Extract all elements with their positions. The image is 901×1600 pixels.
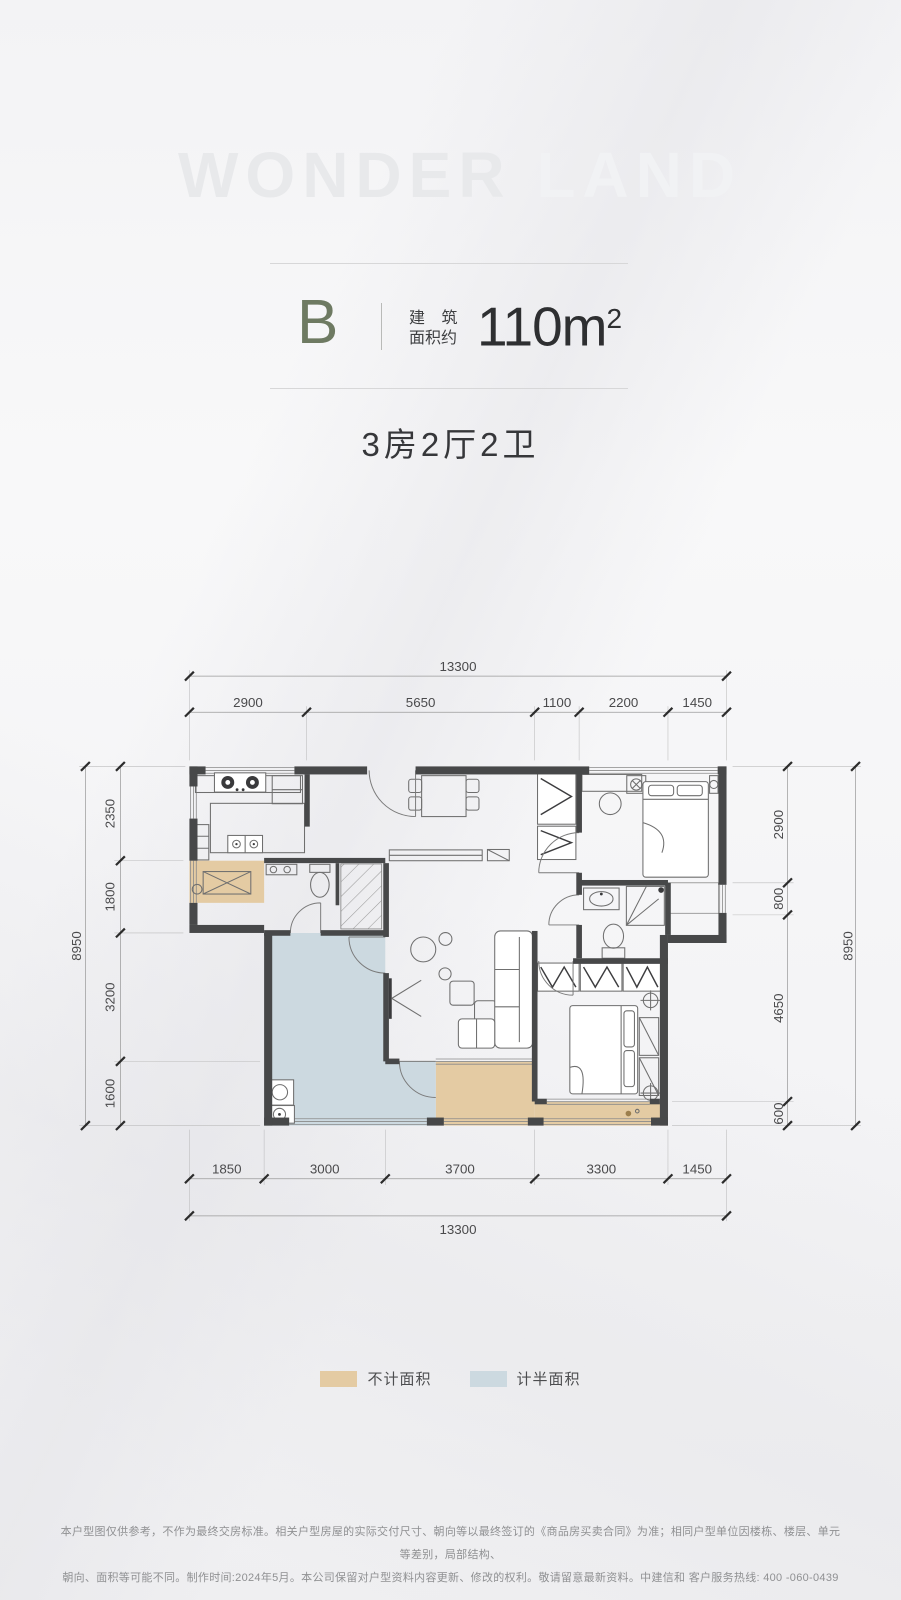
- legend-label: 不计面积: [367, 1368, 431, 1389]
- area-number: 110m: [477, 295, 607, 357]
- master-bath-door: [549, 895, 579, 925]
- dim-label: 1100: [543, 695, 572, 710]
- disclaimer: 本户型图仅供参考，不作为最终交房标准。相关户型房屋的实际交付尺寸、朝向等以最终签…: [56, 1521, 845, 1590]
- dim-label: 3000: [310, 1161, 340, 1176]
- dim-label: 2350: [103, 799, 118, 828]
- legend-item-not-counted: 不计面积: [320, 1368, 431, 1389]
- area-label-line1: 建 筑: [409, 309, 463, 329]
- dim-label: 8950: [69, 931, 84, 960]
- header-rule-bottom: [270, 388, 628, 389]
- dim-label: 3300: [587, 1161, 617, 1176]
- dim-label: 2900: [771, 810, 786, 839]
- entry-door: [369, 770, 415, 816]
- disclaimer-line2: 朝向、面积等可能不同。制作时间:2024年5月。本公司保留对户型资料内容更新、修…: [56, 1567, 845, 1590]
- dim-label: 2900: [233, 695, 263, 710]
- center-balcony-fill: [436, 1061, 535, 1125]
- dim-label: 1850: [212, 1161, 242, 1176]
- area-label: 建 筑 面积约: [409, 309, 463, 349]
- hall-closet: [538, 772, 576, 859]
- legend-swatch-not-counted: [320, 1371, 357, 1387]
- floor-plan: 13300 2900 5650 1100 2200 1450 1850 3000…: [40, 640, 861, 1252]
- dim-label: 3200: [103, 982, 118, 1011]
- guest-bath-door: [290, 903, 320, 933]
- dim-label: 1450: [682, 695, 712, 710]
- dining-area: [389, 776, 509, 861]
- master-bathroom: [584, 886, 665, 958]
- legend-swatch-half-counted: [470, 1371, 507, 1387]
- sofa: [495, 931, 533, 1048]
- ac-platform: [668, 883, 718, 913]
- living-room: [389, 931, 533, 1048]
- dimensions: 13300 2900 5650 1100 2200 1450 1850 3000…: [69, 659, 861, 1237]
- dim-label: 800: [771, 888, 786, 910]
- area-value: 110m2: [477, 287, 622, 356]
- toilet: [603, 924, 623, 948]
- desk-chair: [599, 793, 621, 815]
- layout-subtitle: 3房2厅2卫: [0, 418, 901, 466]
- header-divider: [381, 303, 382, 350]
- dim-label: 2200: [609, 695, 639, 710]
- tv: [389, 978, 392, 1019]
- guest-bathroom: [266, 864, 381, 929]
- bed2: [570, 1006, 638, 1094]
- header-rule-top: [270, 263, 628, 264]
- watermark: WONDER LAND: [178, 138, 742, 212]
- dim-label: 600: [771, 1103, 786, 1125]
- watermark-bold: WONDER: [178, 139, 512, 211]
- dim-label: 1600: [103, 1079, 118, 1108]
- shower-hatch: [341, 864, 382, 929]
- dim-label: 1800: [103, 882, 118, 911]
- dim-label: 8950: [840, 931, 855, 960]
- balcony-dot: [626, 1111, 632, 1117]
- unit-letter: B: [297, 292, 338, 354]
- dim-label: 3700: [445, 1161, 475, 1176]
- dim-label: 5650: [406, 695, 436, 710]
- legend: 不计面积 计半面积: [0, 1368, 901, 1389]
- shower: [626, 886, 664, 925]
- legend-item-half-counted: 计半面积: [470, 1368, 581, 1389]
- poster-page: WONDER LAND B 建 筑 面积约 110m2 3房2厅2卫: [0, 0, 901, 1600]
- dim-label: 13300: [439, 659, 476, 674]
- legend-label: 计半面积: [517, 1368, 581, 1389]
- disclaimer-line1: 本户型图仅供参考，不作为最终交房标准。相关户型房屋的实际交付尺寸、朝向等以最终签…: [56, 1521, 845, 1567]
- equipment-platform-fill: [189, 861, 264, 903]
- armchair: [411, 937, 436, 962]
- kitchen: [193, 773, 305, 860]
- dim-label: 13300: [439, 1222, 476, 1237]
- master-bedroom: [582, 774, 718, 877]
- area-label-line2: 面积约: [409, 329, 463, 349]
- area-superscript: 2: [607, 303, 623, 334]
- dim-label: 1450: [682, 1161, 712, 1176]
- bedroom2: [538, 963, 664, 1116]
- dim-label: 4650: [771, 993, 786, 1022]
- watermark-light: LAND: [536, 139, 742, 211]
